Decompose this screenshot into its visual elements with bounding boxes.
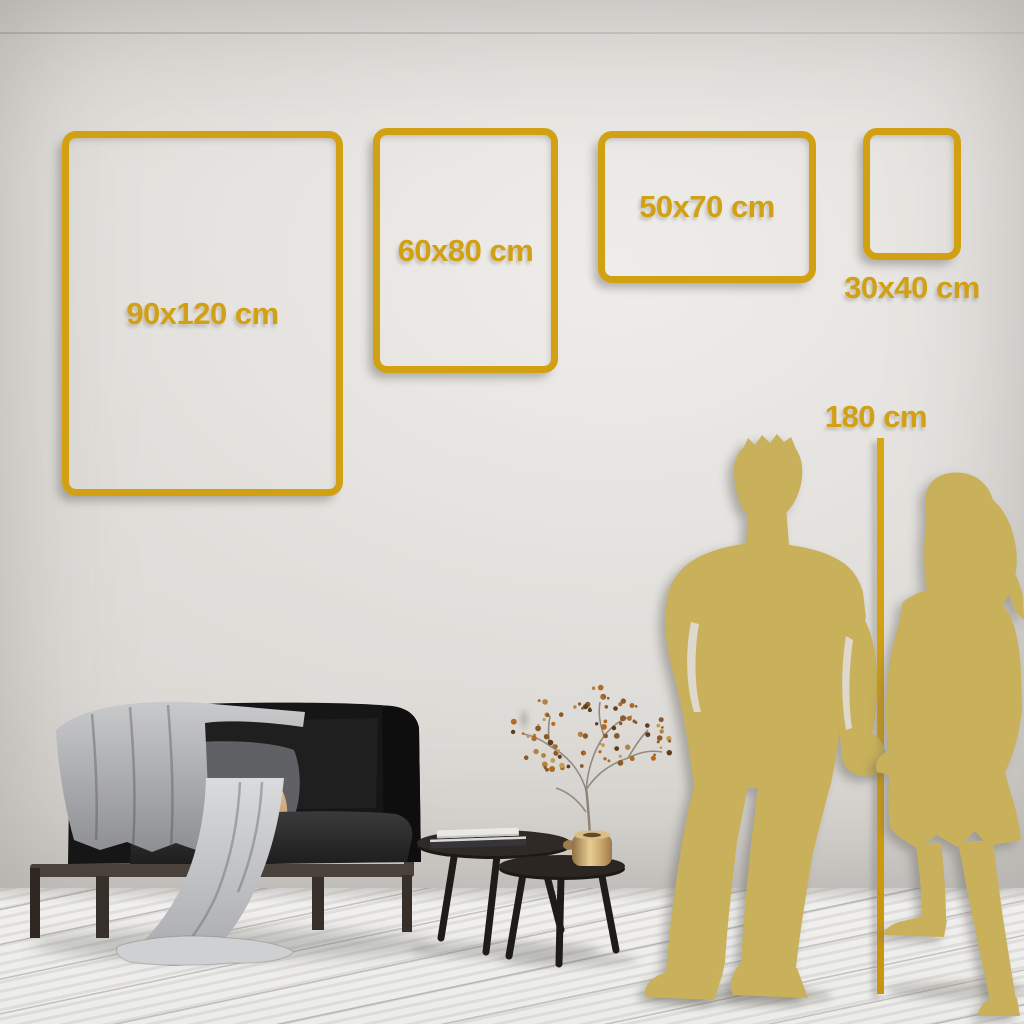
wall-mark <box>518 706 530 732</box>
size-label-60x80: 60x80 cm <box>398 233 534 269</box>
size-guide-scene: 90x120 cm 60x80 cm 50x70 cm 30x40 cm 180… <box>0 0 1024 1024</box>
ceiling-line <box>0 32 1024 34</box>
size-frame-30x40 <box>863 128 961 260</box>
size-frame-50x70: 50x70 cm <box>598 131 816 283</box>
size-label-50x70: 50x70 cm <box>639 189 775 225</box>
size-frame-60x80: 60x80 cm <box>373 128 558 373</box>
size-frame-90x120: 90x120 cm <box>62 131 343 496</box>
wood-floor <box>0 888 1024 1024</box>
height-reference-label: 180 cm <box>796 399 956 435</box>
height-reference-line <box>877 438 884 994</box>
size-label-30x40: 30x40 cm <box>827 270 997 306</box>
size-label-90x120: 90x120 cm <box>126 296 278 332</box>
